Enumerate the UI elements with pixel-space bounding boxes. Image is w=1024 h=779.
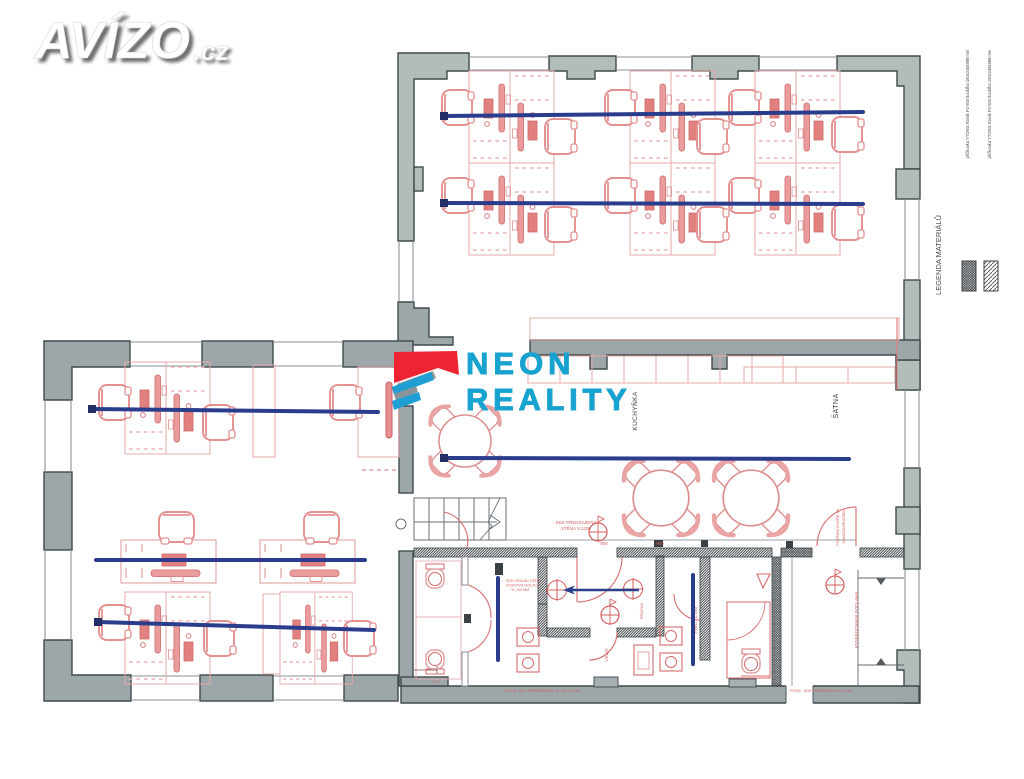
svg-text:NEON: NEON (466, 346, 576, 381)
svg-text:LEGENDA MATERIÁLŮ: LEGENDA MATERIÁLŮ (934, 215, 943, 295)
svg-text:ŠATNA: ŠATNA (831, 393, 840, 418)
svg-text:POZN.: SDK PŘEDEZDÍVKA TL.100: POZN.: SDK PŘEDEZDÍVKA TL.100 (790, 688, 852, 693)
svg-text:TL.100 MM: TL.100 MM (511, 588, 529, 592)
svg-text:POZN.: SDK PŘEDEZDÍVKA TL.100: POZN.: SDK PŘEDEZDÍVKA TL.100 V.1200 (505, 688, 580, 693)
svg-text:SDK PŘEDSAZENÁ: SDK PŘEDSAZENÁ (555, 518, 596, 525)
svg-text:příčkovka YTONG Klasik P2-500: příčkovka YTONG Klasik P2-500 tloušťka 1… (965, 49, 970, 158)
svg-text:REALITY: REALITY (466, 382, 632, 417)
svg-text:1.17: 1.17 (432, 680, 439, 684)
svg-text:KUCHYŇKA: KUCHYŇKA (630, 391, 639, 431)
svg-text:.cz: .cz (193, 36, 230, 66)
svg-text:příčkovka YTONG Klasik P2-500: příčkovka YTONG Klasik P2-500 tloušťka 1… (987, 49, 992, 158)
svg-text:900: 900 (656, 541, 664, 546)
svg-text:STĚNA V.1200: STĚNA V.1200 (561, 524, 591, 531)
svg-text:PRAČKA: PRAČKA (639, 602, 644, 619)
svg-text:SDK OBKLAD STĚNY: SDK OBKLAD STĚNY (506, 578, 543, 583)
svg-text:ÚKLID: ÚKLID (603, 648, 609, 662)
svg-text:ZVUKOVÁ IZOLACE: ZVUKOVÁ IZOLACE (506, 584, 540, 588)
svg-text:900: 900 (600, 541, 608, 546)
svg-text:VYSPÁDOVANÁ PODLAHA: VYSPÁDOVANÁ PODLAHA (853, 592, 859, 648)
svg-text:POŽÁRNÍ DVEŘE SE: POŽÁRNÍ DVEŘE SE (835, 508, 840, 546)
svg-text:SAMOZAVÍRAČEM: SAMOZAVÍRAČEM (841, 510, 846, 543)
svg-text:AVÍZO: AVÍZO (33, 12, 190, 70)
